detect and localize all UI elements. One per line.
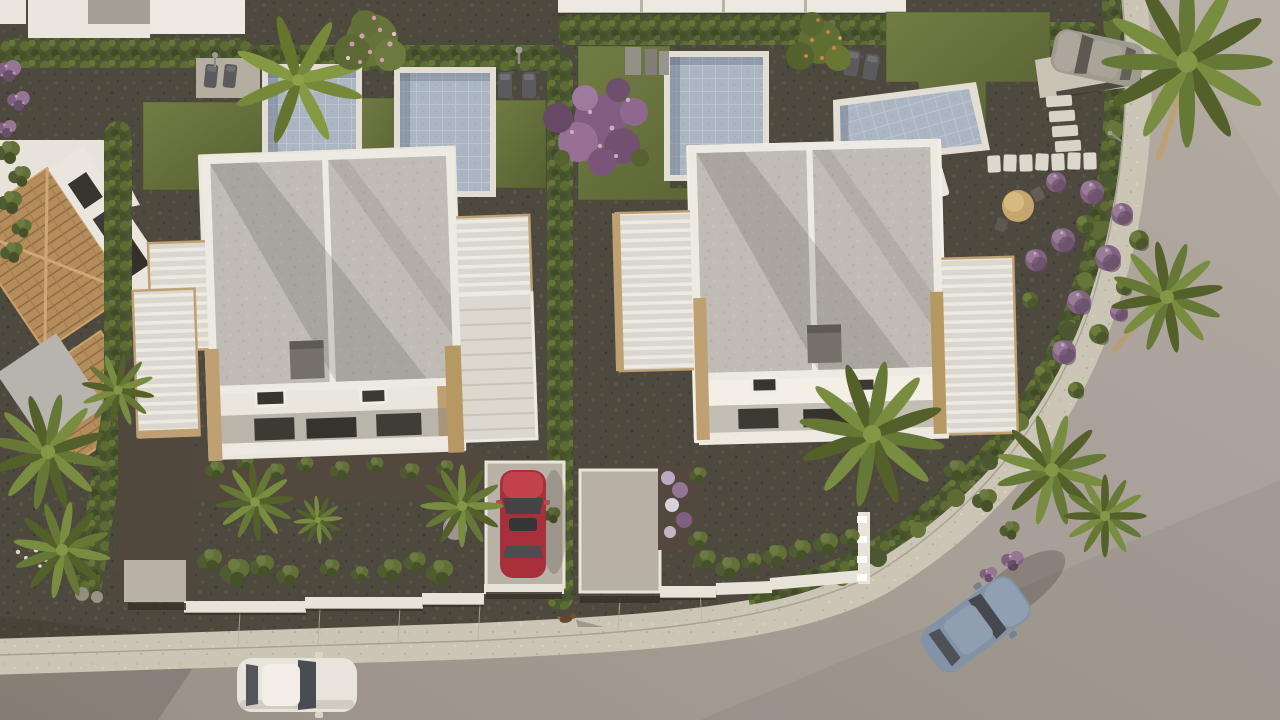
scene-canvas [0,0,1280,720]
warm-light-overlay [0,0,1280,720]
aerial-render-scene [0,0,1280,720]
